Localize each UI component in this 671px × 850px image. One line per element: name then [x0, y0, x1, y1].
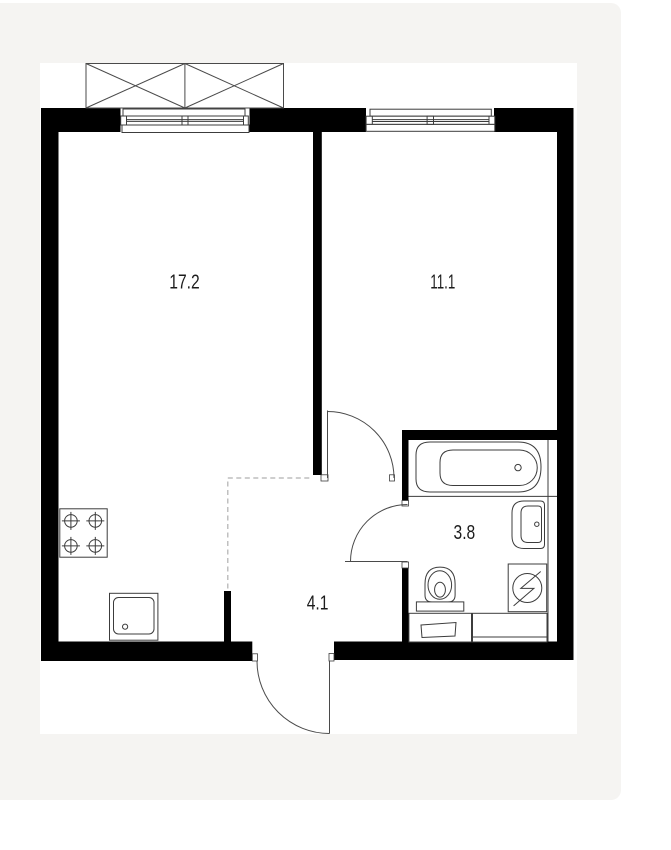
- svg-text:11.1: 11.1: [430, 271, 455, 293]
- svg-text:4.1: 4.1: [307, 592, 329, 614]
- svg-text:3.8: 3.8: [454, 522, 476, 544]
- svg-text:17.2: 17.2: [169, 271, 200, 293]
